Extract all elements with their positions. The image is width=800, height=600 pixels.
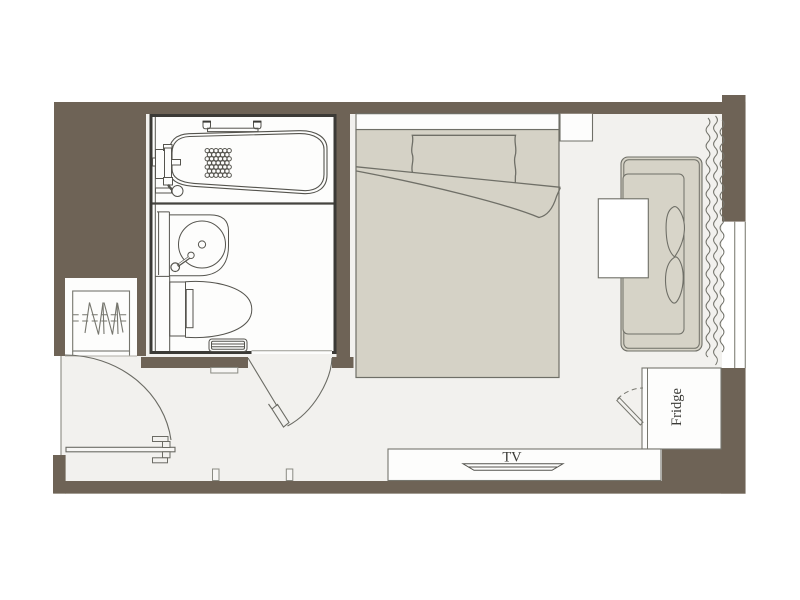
svg-text:Fridge: Fridge (669, 388, 685, 426)
svg-text:TV: TV (502, 450, 522, 466)
